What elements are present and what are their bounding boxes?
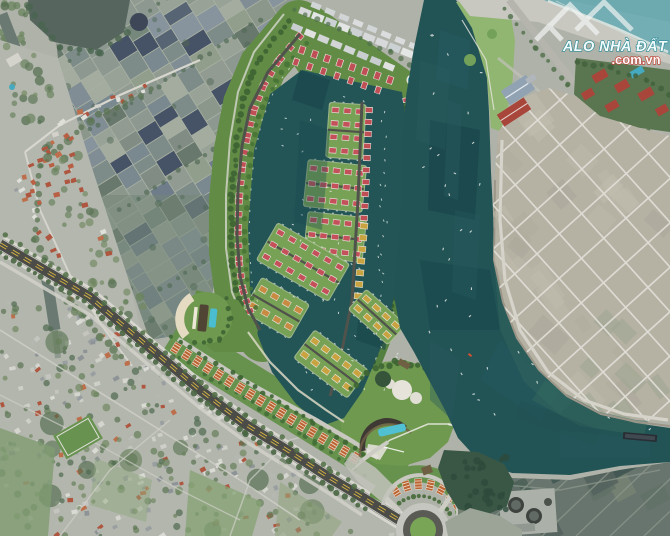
svg-text:.com.vn: .com.vn (611, 52, 660, 67)
